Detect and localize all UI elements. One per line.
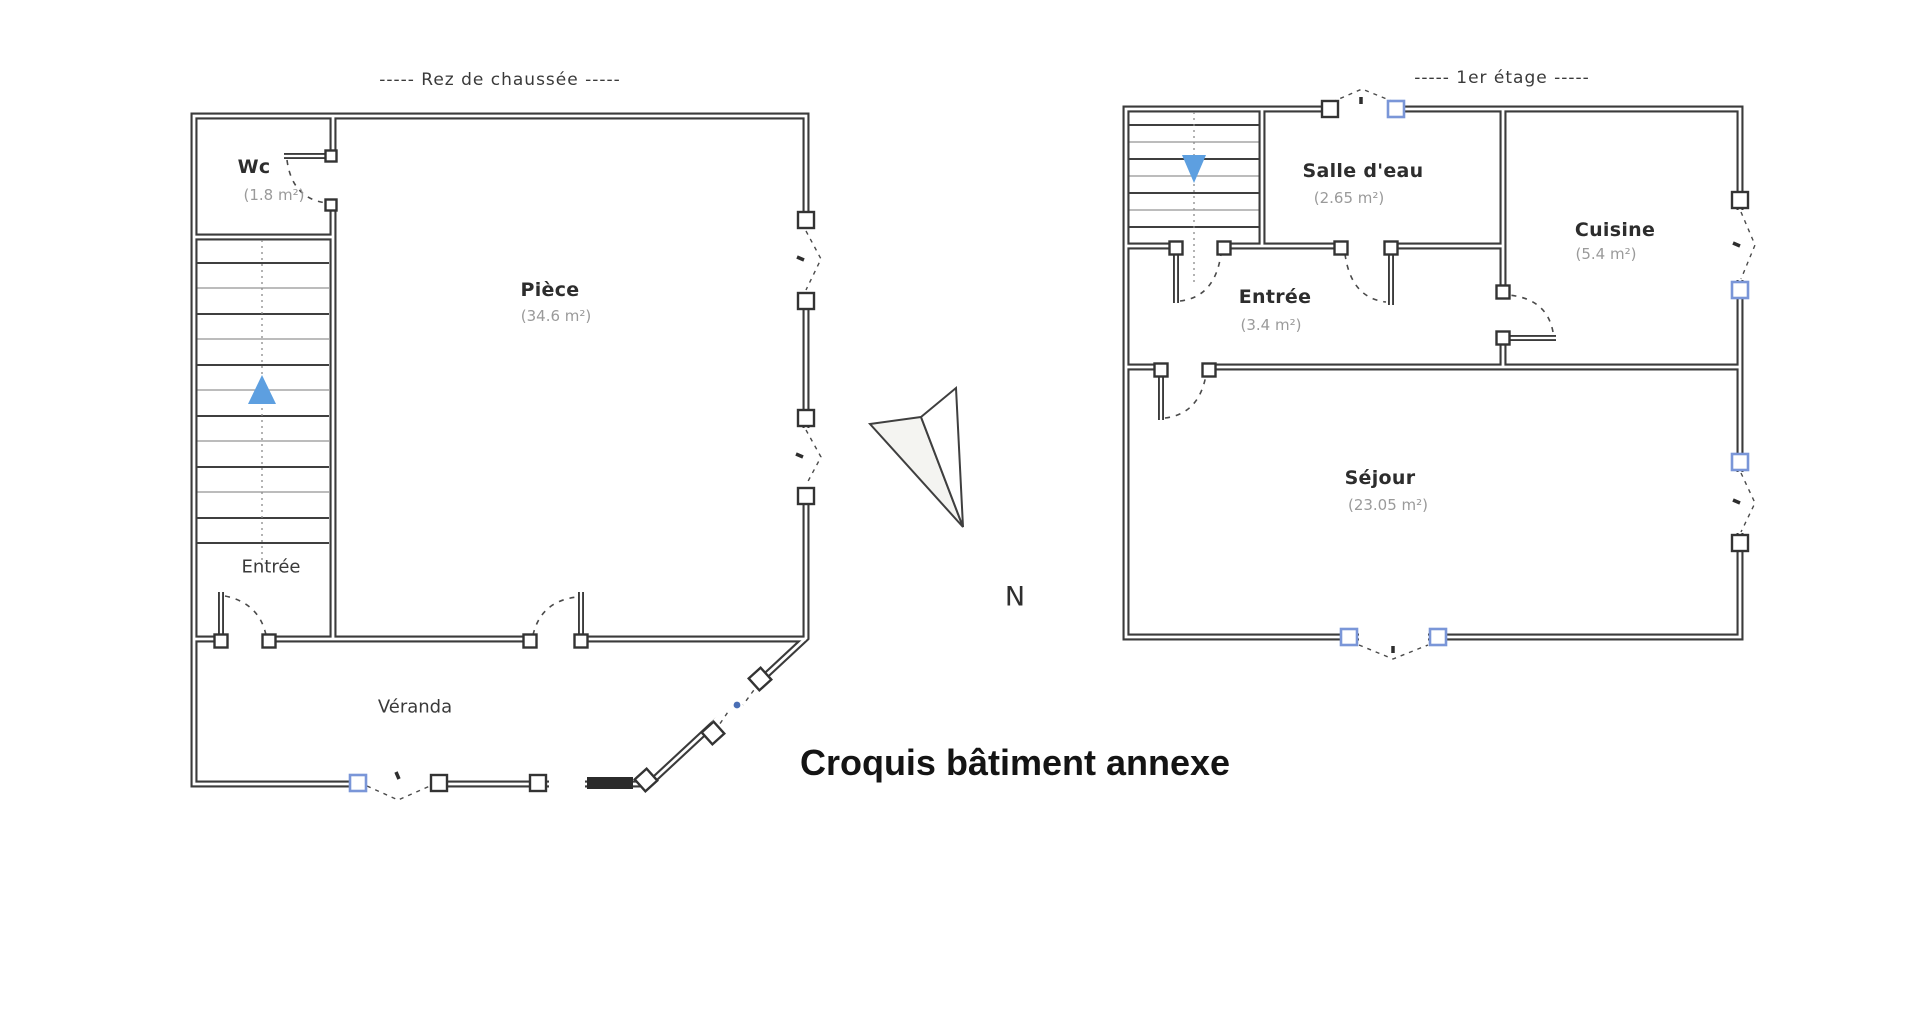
floorplan-drawing <box>0 0 1920 1017</box>
room-area-sejour: (23.05 m²) <box>1348 496 1428 514</box>
stairs-down-arrow-icon <box>1182 155 1206 183</box>
plan-caption-first-floor: ----- 1er étage ----- <box>1414 68 1590 88</box>
ground-floor-plan <box>194 116 821 800</box>
exterior-wall <box>194 116 806 784</box>
room-label-wc: Wc <box>238 156 271 178</box>
first-floor-plan <box>1126 89 1755 659</box>
room-label-entree-ground: Entrée <box>242 557 301 578</box>
room-area-cuisine: (5.4 m²) <box>1576 245 1637 263</box>
wall-segment-dark <box>587 777 633 789</box>
room-label-salle-deau: Salle d'eau <box>1303 160 1424 182</box>
floorplan-scan: ----- Rez de chaussée ----- ----- 1er ét… <box>0 0 1920 1017</box>
room-area-wc: (1.8 m²) <box>244 186 305 204</box>
window-marker <box>1155 101 1749 645</box>
room-label-piece: Pièce <box>521 279 580 301</box>
north-label: N <box>1005 582 1025 613</box>
room-label-sejour: Séjour <box>1345 467 1416 489</box>
room-area-piece: (34.6 m²) <box>521 307 592 325</box>
exterior-wall <box>1126 109 1740 637</box>
room-label-entree-first: Entrée <box>1239 286 1312 308</box>
room-area-salle-deau: (2.65 m²) <box>1314 189 1385 207</box>
north-arrow-icon <box>870 388 963 527</box>
door-handle-dot <box>734 702 741 709</box>
room-label-cuisine: Cuisine <box>1575 219 1655 241</box>
page-title: Croquis bâtiment annexe <box>800 742 1230 784</box>
room-area-entree-first: (3.4 m²) <box>1241 316 1302 334</box>
door-swing-arc <box>1165 254 1553 418</box>
plan-caption-ground-floor: ----- Rez de chaussée ----- <box>379 70 621 90</box>
window-marker <box>215 151 815 792</box>
stairs-up <box>197 240 329 560</box>
stairs-down <box>1129 112 1259 285</box>
room-label-veranda: Véranda <box>378 697 452 718</box>
